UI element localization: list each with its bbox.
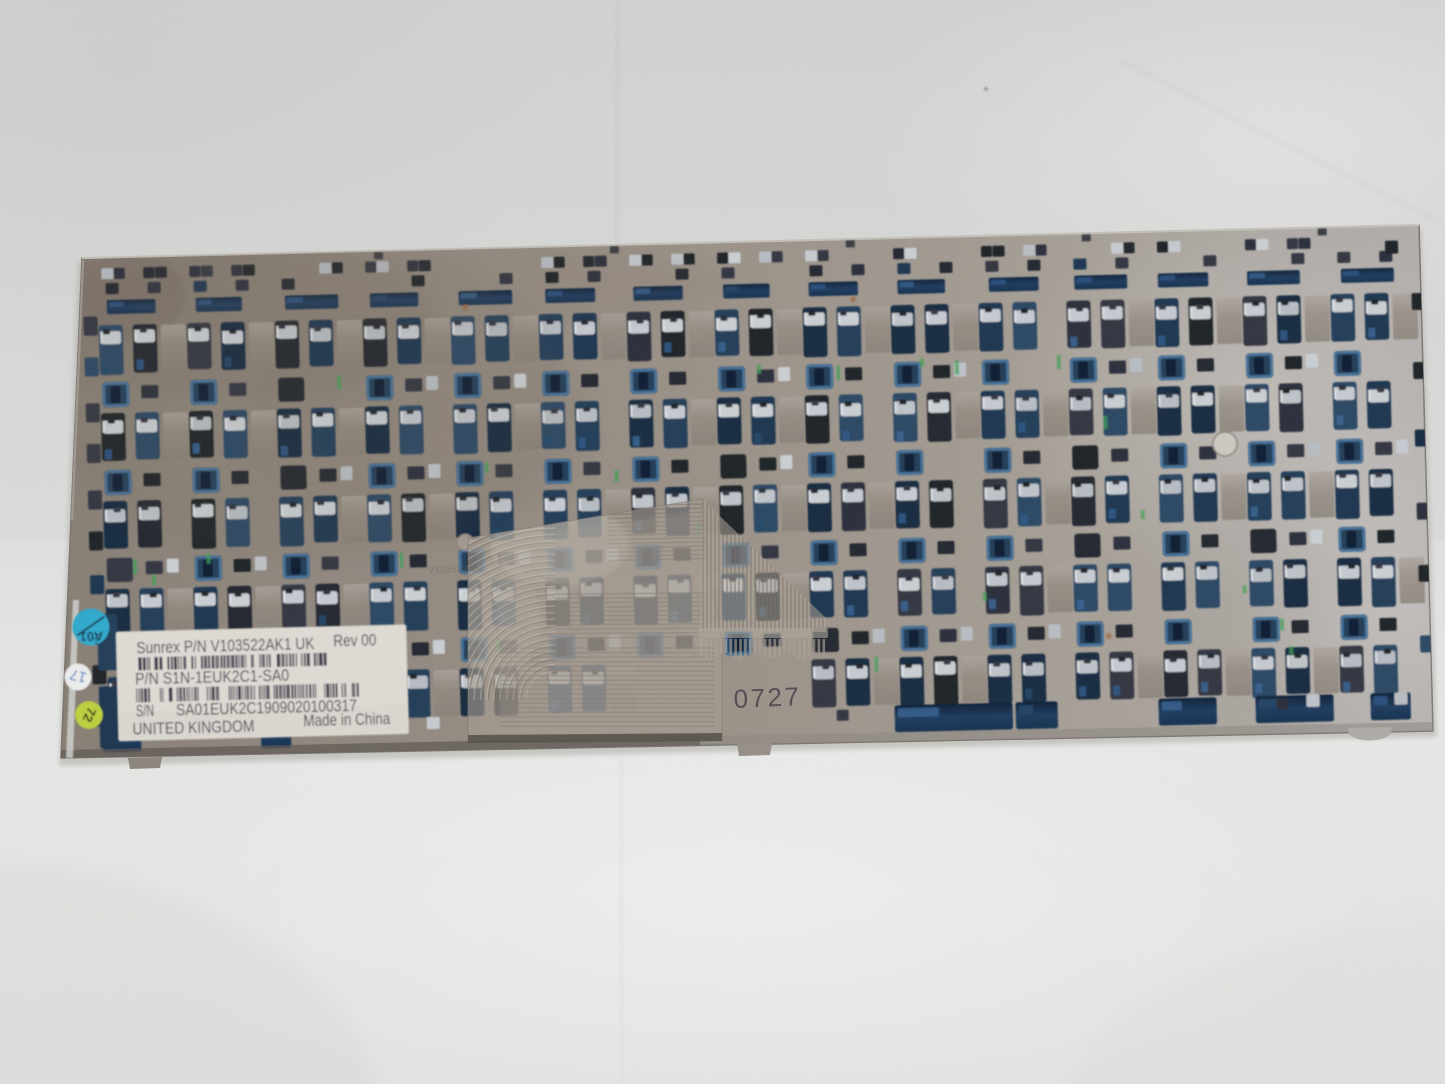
svg-text:0727: 0727: [733, 681, 802, 714]
svg-text:V103522A: V103522A: [428, 564, 475, 576]
svg-text:Rev 00: Rev 00: [333, 631, 376, 650]
svg-text:S/N: S/N: [136, 702, 154, 720]
svg-text:Made in China: Made in China: [303, 710, 391, 730]
svg-text:UNITED KINGDOM: UNITED KINGDOM: [132, 718, 254, 739]
svg-text:1: 1: [92, 635, 99, 646]
